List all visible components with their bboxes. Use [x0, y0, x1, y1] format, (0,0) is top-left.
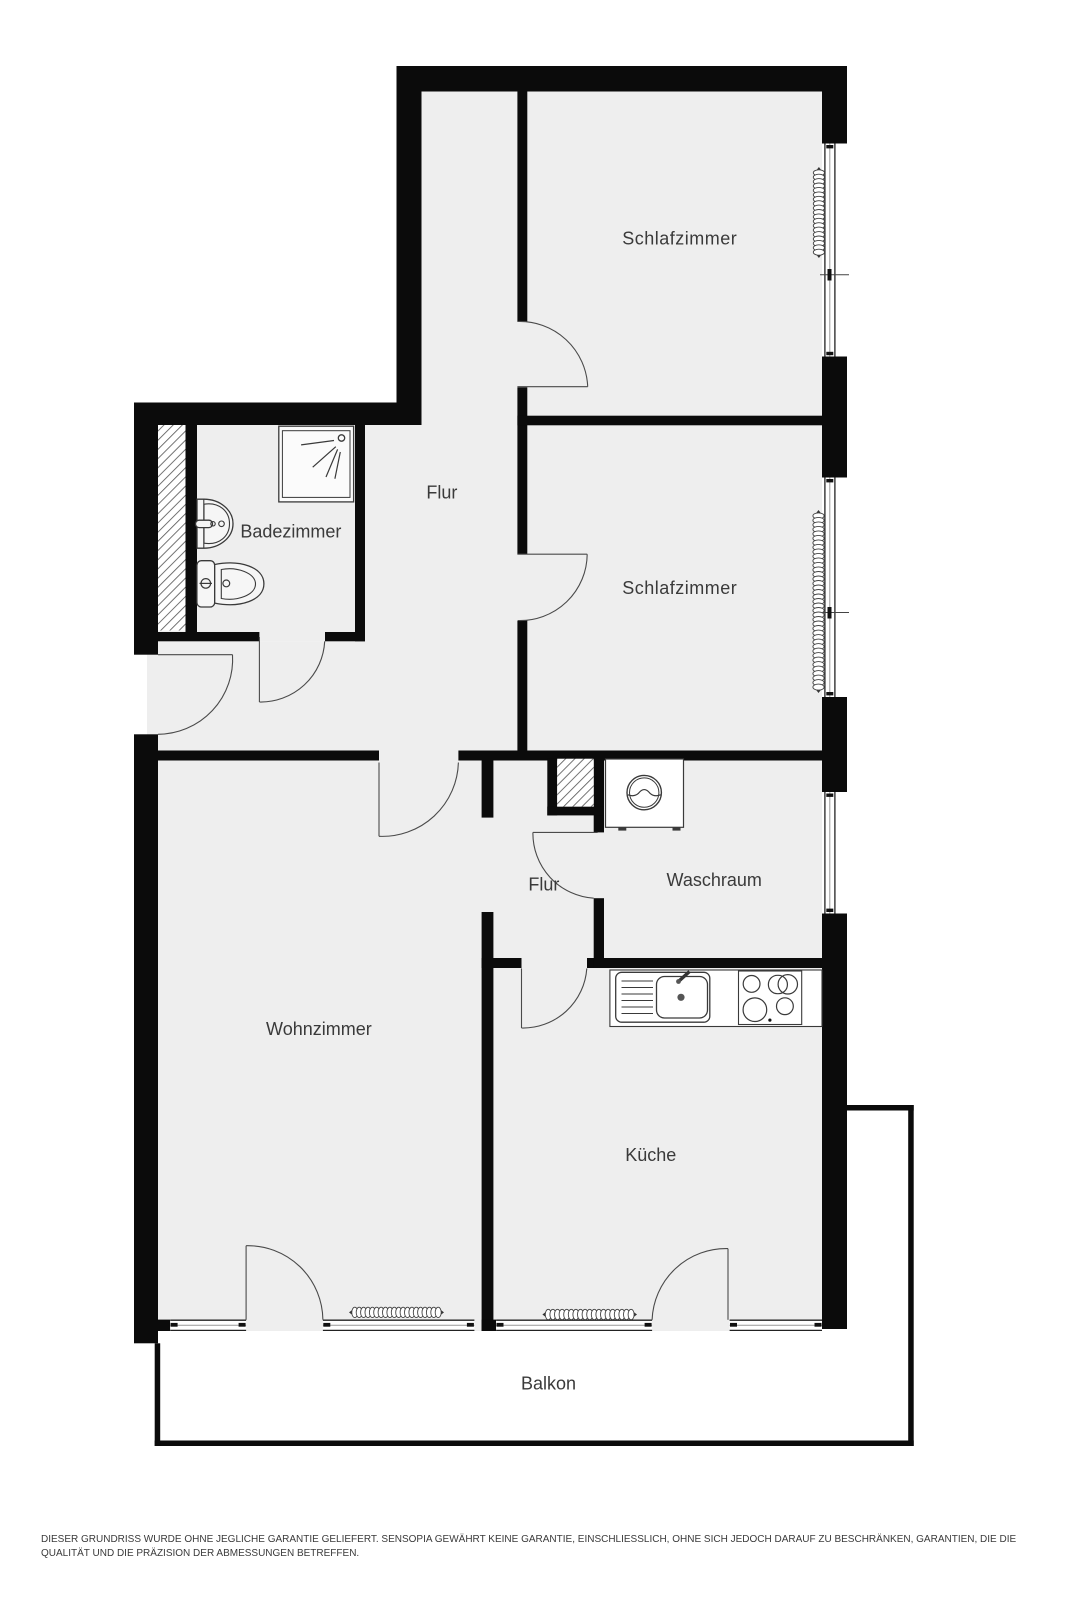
svg-text:Schlafzimmer: Schlafzimmer — [622, 229, 737, 249]
svg-text:Schlafzimmer: Schlafzimmer — [622, 578, 737, 598]
svg-text:Flur: Flur — [426, 482, 457, 502]
svg-text:Flur: Flur — [528, 874, 559, 894]
svg-text:Wohnzimmer: Wohnzimmer — [266, 1019, 372, 1039]
svg-text:QUALITÄT UND DIE PRÄZISION DER: QUALITÄT UND DIE PRÄZISION DER ABMESSUNG… — [41, 1547, 359, 1559]
svg-text:Balkon: Balkon — [521, 1374, 576, 1394]
svg-text:Badezimmer: Badezimmer — [240, 522, 341, 542]
svg-text:DIESER GRUNDRISS WURDE OHNE JE: DIESER GRUNDRISS WURDE OHNE JEGLICHE GAR… — [41, 1533, 1017, 1545]
svg-text:Waschraum: Waschraum — [667, 870, 762, 890]
svg-text:Küche: Küche — [625, 1145, 676, 1165]
